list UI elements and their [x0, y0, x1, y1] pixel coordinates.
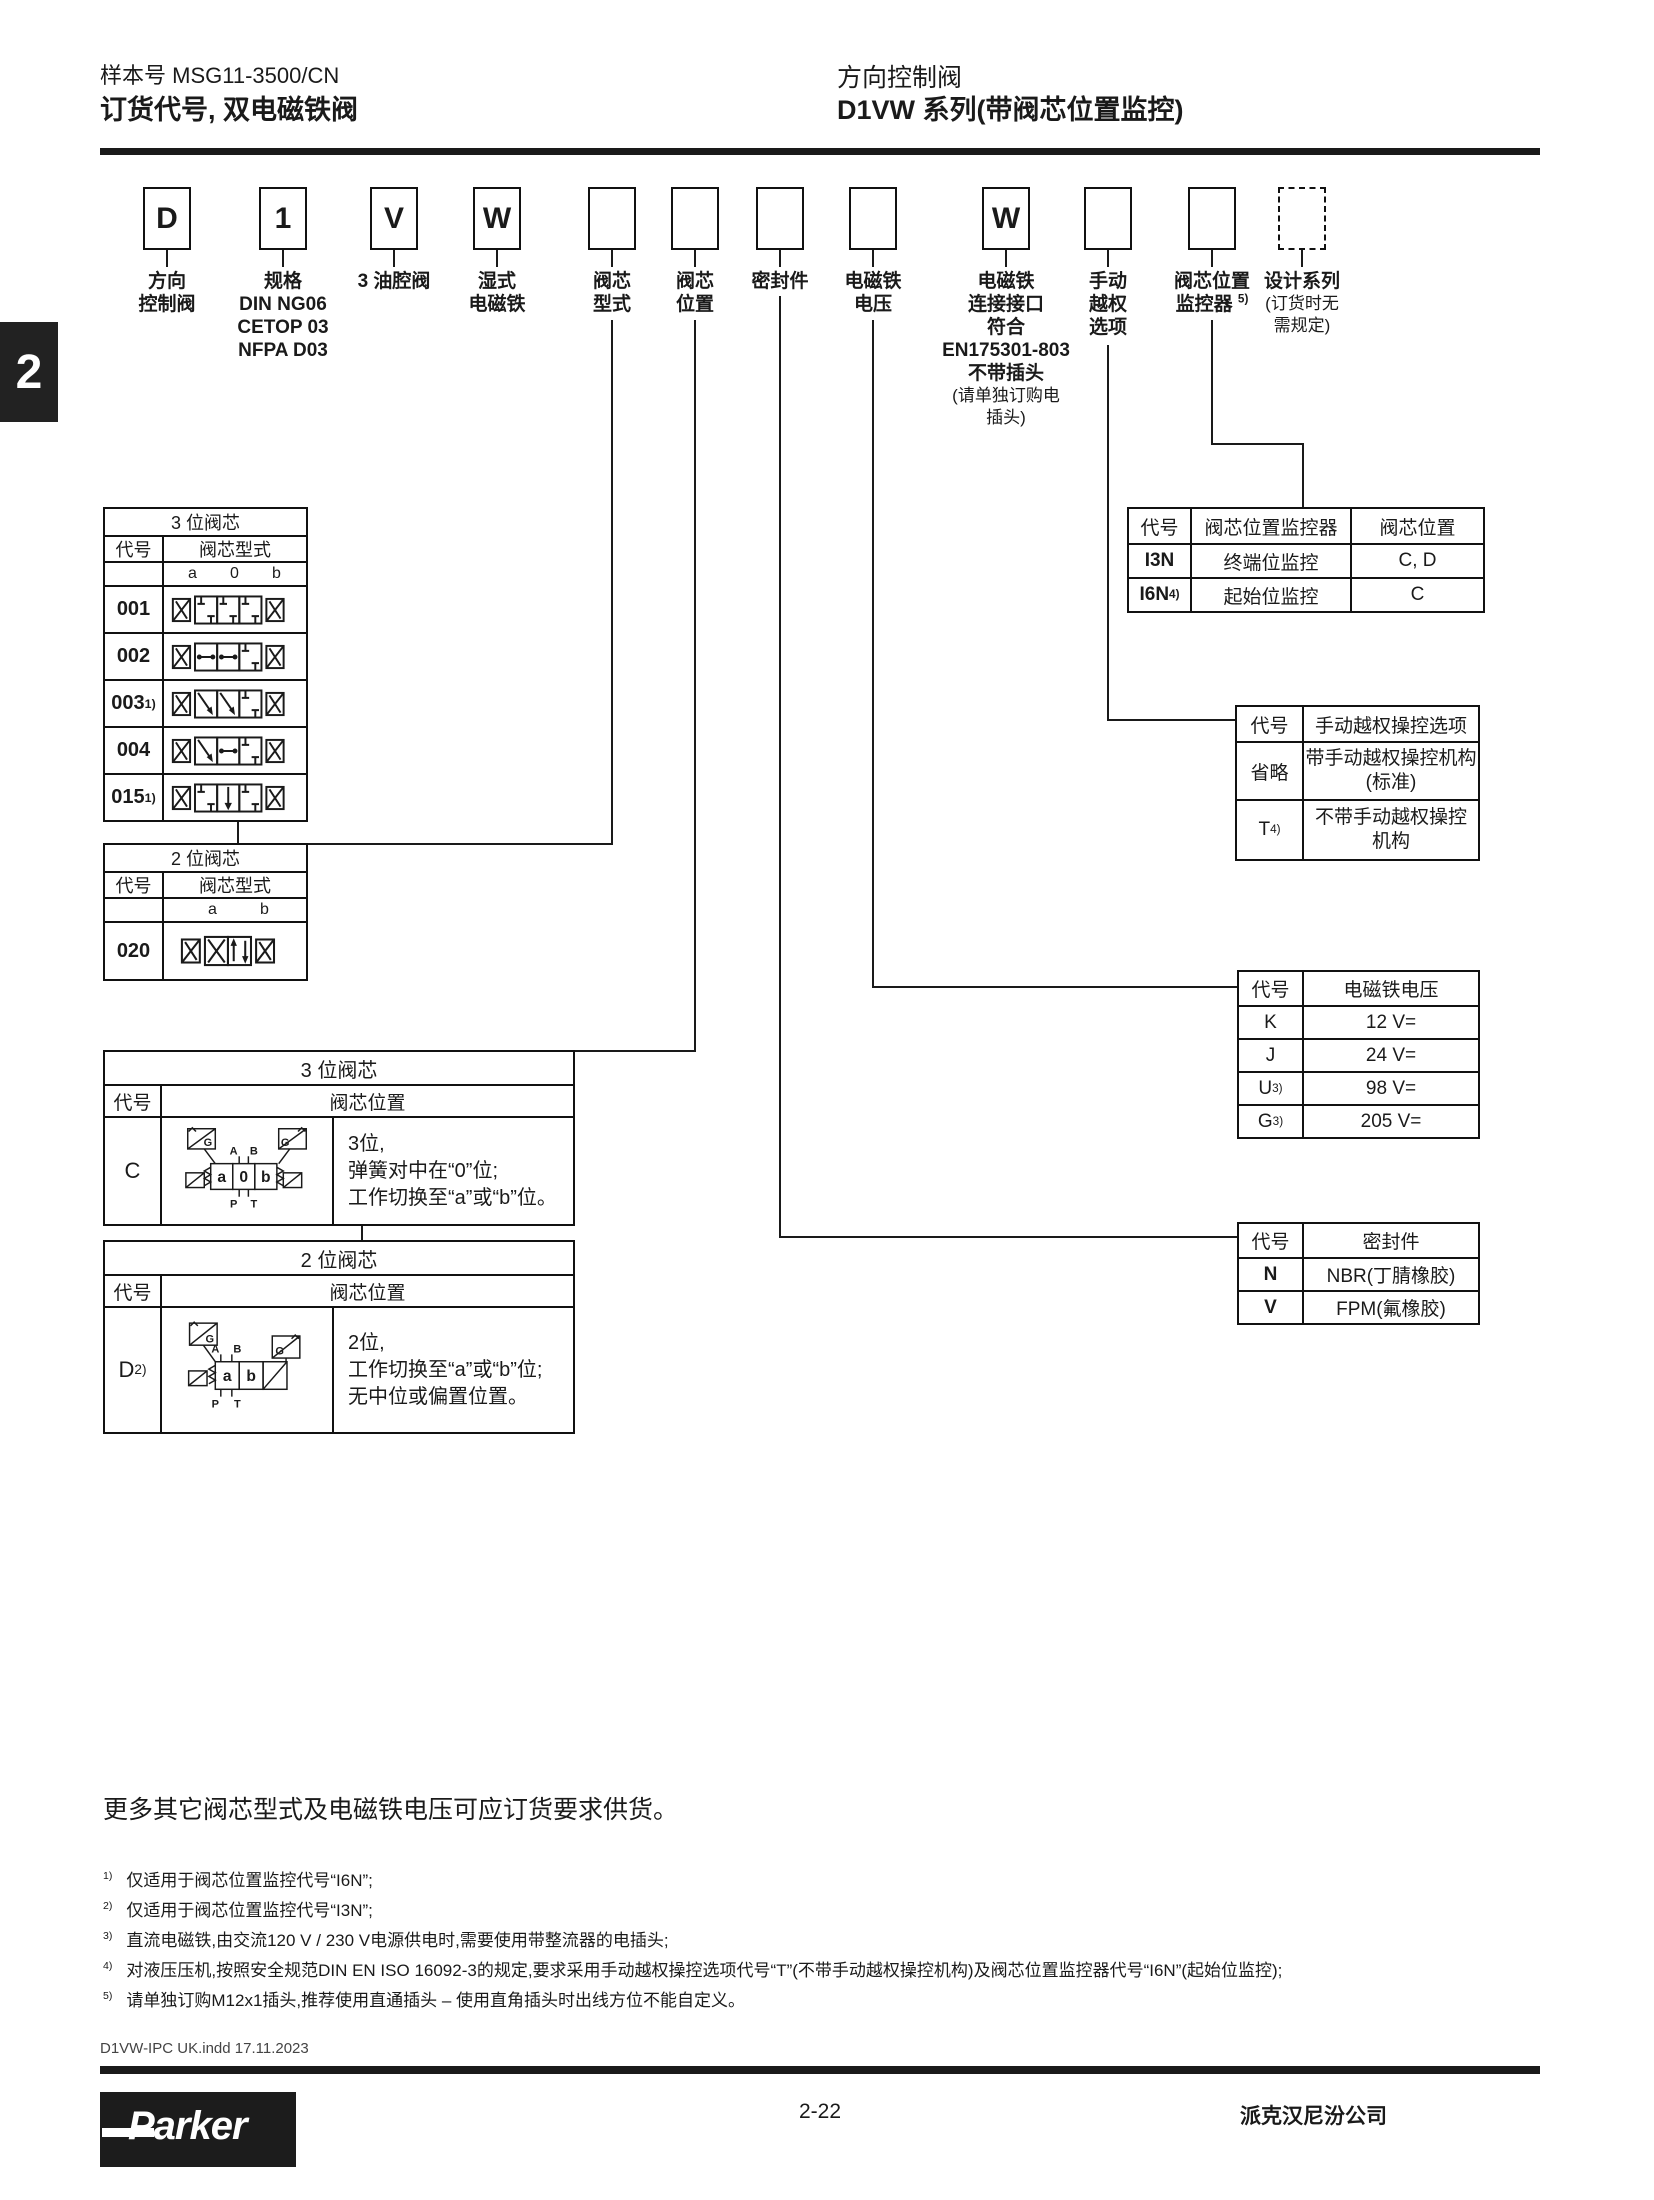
- table-row: G3) 205 V=: [1239, 1104, 1478, 1137]
- voltage-table: 代号 电磁铁电压 K 12 V= J 24 V= U3) 98 V= G3) 2…: [1237, 970, 1480, 1139]
- footnote-4: 4)对液压压机,按照安全规范DIN EN ISO 16092-3的规定,要求采用…: [103, 1956, 1282, 1981]
- table-row: C: [105, 1116, 573, 1224]
- code-box-8: [849, 187, 897, 250]
- svg-text:B: B: [250, 1145, 258, 1157]
- connector-spool-type-h: [308, 843, 613, 845]
- col-header-code: 代号: [1129, 509, 1190, 543]
- col-header-pos: 阀芯位置: [1350, 509, 1483, 543]
- page-number: 2-22: [760, 2100, 880, 2124]
- col-header-pos: 阀芯位置: [160, 1276, 573, 1306]
- svg-text:G: G: [275, 1345, 284, 1357]
- label-design-series: 设计系列 (订货时无 需规定): [1264, 270, 1340, 337]
- connector-monitor-h: [1211, 443, 1304, 445]
- connector-spool-pos-h: [575, 1050, 696, 1052]
- company-name: 派克汉尼汾公司: [1240, 2100, 1387, 2130]
- spool-symbol-002: [171, 636, 299, 678]
- pos-label-b: b: [260, 901, 269, 919]
- spool-symbol-020: [180, 929, 290, 973]
- table-row: 004: [105, 726, 306, 773]
- spool-type-2pos-table: 2 位阀芯 代号 阀芯型式 a b 020: [103, 843, 308, 981]
- table-row: N NBR(丁腈橡胶): [1239, 1257, 1478, 1290]
- footnote-5: 5)请单独订购M12x1插头,推荐使用直通插头 – 使用直角插头时出线方位不能自…: [103, 1986, 745, 2011]
- connector-stub-4: [496, 250, 498, 267]
- connector-stub-8: [872, 250, 874, 267]
- seal-table: 代号 密封件 N NBR(丁腈橡胶) V FPM(氟橡胶): [1237, 1222, 1480, 1325]
- connector-stub-11: [1211, 250, 1213, 267]
- connector-seal-h: [779, 1236, 1239, 1238]
- col-header-monitor: 阀芯位置监控器: [1190, 509, 1350, 543]
- connector-spool-type: [611, 320, 613, 843]
- spool-pos-2-table: 2 位阀芯 代号 阀芯位置 D 2): [103, 1240, 575, 1434]
- page-title-left: 订货代号, 双电磁铁阀: [100, 88, 358, 127]
- table-row: 001: [105, 585, 306, 632]
- table-row: T4) 不带手动越权操控 机构: [1237, 799, 1478, 859]
- spool-symbol-004: [171, 730, 299, 772]
- code-box-10: [1084, 187, 1132, 250]
- footer-rule: [100, 2066, 1540, 2074]
- table-row: J 24 V=: [1239, 1038, 1478, 1071]
- col-header-code: 代号: [105, 873, 162, 897]
- catalog-page: 样本号 MSG11-3500/CN 订货代号, 双电磁铁阀 方向控制阀 D1VW…: [0, 0, 1654, 2200]
- table-row: 002: [105, 632, 306, 679]
- svg-text:P: P: [212, 1399, 219, 1411]
- code-box-5: [588, 187, 636, 250]
- label-size: 规格 DIN NG06 CETOP 03 NFPA D03: [237, 270, 328, 362]
- svg-text:a: a: [217, 1169, 226, 1186]
- label-direction-valve: 方向 控制阀: [138, 270, 195, 316]
- svg-text:b: b: [261, 1169, 271, 1186]
- connector-stub-9: [1005, 250, 1007, 267]
- spool-type-3pos-table: 3 位阀芯 代号 阀芯型式 a 0 b 001: [103, 507, 308, 822]
- label-spool-position: 阀芯 位置: [676, 270, 714, 316]
- table-title: 2 位阀芯: [105, 845, 306, 871]
- svg-text:T: T: [234, 1399, 241, 1411]
- svg-text:G: G: [204, 1137, 213, 1149]
- svg-text:b: b: [246, 1368, 256, 1385]
- connector-stub-1: [166, 250, 168, 267]
- pos-label-0: 0: [230, 565, 239, 583]
- label-spool-monitor: 阀芯位置 监控器 5): [1174, 270, 1250, 316]
- spool-pos-2-description: 2位, 工作切换至“a”或“b”位; 无中位或偏置位置。: [334, 1330, 573, 1411]
- label-wet-solenoid: 湿式 电磁铁: [468, 270, 525, 316]
- table-title: 2 位阀芯: [105, 1242, 573, 1274]
- svg-text:P: P: [230, 1199, 237, 1211]
- connector-stub-3: [393, 250, 395, 267]
- code-box-7: [756, 187, 804, 250]
- svg-text:G: G: [281, 1137, 290, 1149]
- doc-number: 样本号 MSG11-3500/CN: [100, 58, 339, 90]
- spool-symbol-001: [171, 589, 299, 631]
- col-header-option: 手动越权操控选项: [1302, 707, 1478, 741]
- connector-voltage-h: [872, 986, 1239, 988]
- table-row: I6N 4) 起始位监控 C: [1129, 577, 1483, 611]
- svg-text:0: 0: [239, 1169, 248, 1186]
- label-seals: 密封件: [751, 270, 808, 293]
- table-title: 3 位阀芯: [105, 1052, 573, 1084]
- col-header-code: 代号: [105, 537, 162, 561]
- pos-label-a: a: [208, 901, 217, 919]
- col-header-code: 代号: [105, 1276, 160, 1306]
- spool-pos-3-table: 3 位阀芯 代号 阀芯位置 C: [103, 1050, 575, 1226]
- monitor-table: 代号 阀芯位置监控器 阀芯位置 I3N 终端位监控 C, D I6N 4) 起始…: [1127, 507, 1485, 613]
- spool-symbol-015: [171, 777, 299, 819]
- code-box-12-design-series: [1278, 187, 1326, 250]
- connector-seal: [779, 296, 781, 1238]
- parker-logo: Parker: [100, 2092, 296, 2167]
- connector-monitor: [1211, 320, 1213, 445]
- series-title: D1VW 系列(带阀芯位置监控): [837, 88, 1184, 127]
- code-box-2: 1: [259, 187, 307, 250]
- label-manual-override: 手动 越权 选项: [1089, 270, 1127, 339]
- col-header-code: 代号: [105, 1086, 160, 1116]
- col-header-type: 阀芯型式: [162, 537, 306, 561]
- col-header-pos: 阀芯位置: [160, 1086, 573, 1116]
- label-3-chamber: 3 油腔阀: [358, 270, 431, 293]
- table-row: D 2) a: [105, 1306, 573, 1432]
- col-header-code: 代号: [1237, 707, 1302, 741]
- footnote-2: 2)仅适用于阀芯位置监控代号“I3N”;: [103, 1896, 373, 1921]
- svg-text:B: B: [233, 1344, 241, 1356]
- svg-text:T: T: [251, 1199, 258, 1211]
- label-solenoid-connector: 电磁铁 连接接口 符合 EN175301-803 不带插头 (请单独订购电 插头…: [942, 270, 1070, 429]
- connector-monitor-v2: [1302, 443, 1304, 507]
- spool-symbol-003: [171, 683, 299, 725]
- connector-stub-10: [1107, 250, 1109, 267]
- col-header-voltage: 电磁铁电压: [1302, 972, 1478, 1005]
- connector-stub-6: [694, 250, 696, 267]
- table-row: 省略 带手动越权操控机构 (标准): [1237, 741, 1478, 799]
- col-header-code: 代号: [1239, 1224, 1302, 1257]
- connector-stub-7: [779, 250, 781, 267]
- connector-spool-pos: [694, 320, 696, 1050]
- table-title: 3 位阀芯: [105, 509, 306, 535]
- svg-text:a: a: [223, 1368, 232, 1385]
- code-box-11: [1188, 187, 1236, 250]
- pos-label-a: a: [188, 565, 197, 583]
- code-box-3: V: [370, 187, 418, 250]
- table-row: 0151): [105, 773, 306, 820]
- col-header-seal: 密封件: [1302, 1224, 1478, 1257]
- connector-stub-5: [611, 250, 613, 267]
- table-row: I3N 终端位监控 C, D: [1129, 543, 1483, 577]
- label-spool-type: 阀芯 型式: [593, 270, 631, 316]
- pos-label-b: b: [272, 565, 281, 583]
- connector-voltage: [872, 320, 874, 988]
- code-box-4: W: [473, 187, 521, 250]
- connector-override-h: [1107, 719, 1237, 721]
- parker-logo-text: Parker: [128, 2104, 247, 2149]
- col-header-type: 阀芯型式: [162, 873, 306, 897]
- connector-stub-12: [1301, 250, 1303, 267]
- section-tab: 2: [0, 322, 58, 422]
- svg-text:A: A: [230, 1145, 238, 1157]
- svg-text:G: G: [205, 1333, 214, 1345]
- table-row: K 12 V=: [1239, 1005, 1478, 1038]
- table-row: V FPM(氟橡胶): [1239, 1290, 1478, 1323]
- code-box-1: D: [143, 187, 191, 250]
- footnote-3: 3)直流电磁铁,由交流120 V / 230 V电源供电时,需要使用带整流器的电…: [103, 1926, 669, 1951]
- supply-note: 更多其它阀芯型式及电磁铁电压可应订货要求供货。: [103, 1790, 678, 1826]
- header-rule: [100, 148, 1540, 155]
- valve-diagram-2pos: a b A B P T G G: [162, 1313, 332, 1427]
- code-box-9: W: [982, 187, 1030, 250]
- table-row: 020: [105, 921, 306, 979]
- code-box-6: [671, 187, 719, 250]
- table-row: U3) 98 V=: [1239, 1071, 1478, 1104]
- connector-stub-2: [282, 250, 284, 267]
- imprint: D1VW-IPC UK.indd 17.11.2023: [100, 2040, 309, 2057]
- label-solenoid-voltage: 电磁铁 电压: [844, 270, 901, 316]
- footnote-1: 1)仅适用于阀芯位置监控代号“I6N”;: [103, 1866, 373, 1891]
- override-table: 代号 手动越权操控选项 省略 带手动越权操控机构 (标准) T4) 不带手动越权…: [1235, 705, 1480, 861]
- spool-pos-3-description: 3位, 弹簧对中在“0”位; 工作切换至“a”或“b”位。: [334, 1131, 573, 1212]
- connector-override: [1107, 345, 1109, 721]
- valve-diagram-3pos: a 0 b A B P T G G: [162, 1121, 332, 1221]
- table-row: 0031): [105, 679, 306, 726]
- col-header-code: 代号: [1239, 972, 1302, 1005]
